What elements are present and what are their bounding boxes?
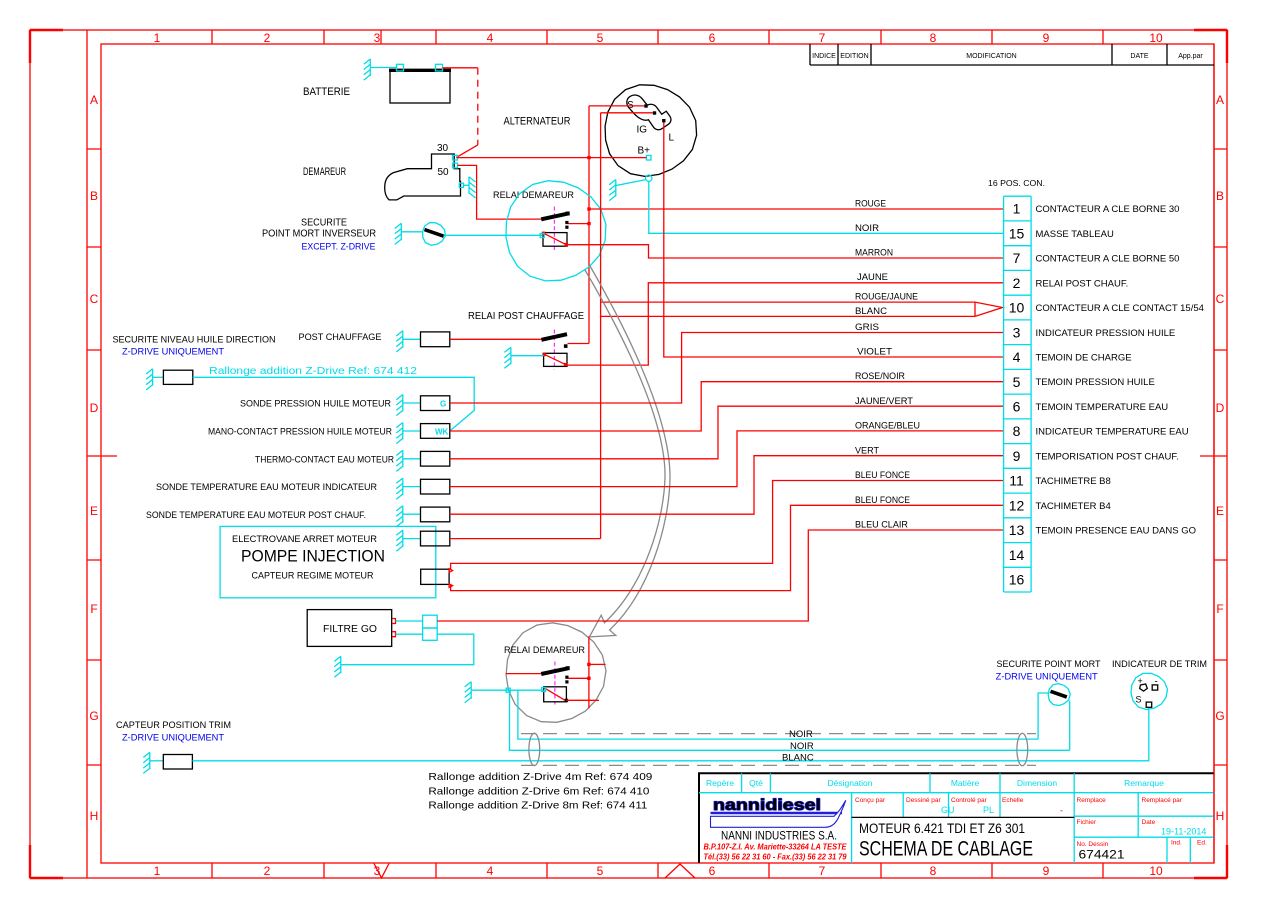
svg-text:SONDE TEMPERATURE EAU MOTEUR I: SONDE TEMPERATURE EAU MOTEUR INDICATEUR <box>156 482 377 492</box>
svg-text:JAUNE/VERT: JAUNE/VERT <box>855 396 914 406</box>
svg-text:Z-DRIVE UNIQUEMENT: Z-DRIVE UNIQUEMENT <box>122 733 225 743</box>
svg-text:IG: IG <box>637 125 648 136</box>
svg-text:3: 3 <box>374 31 381 45</box>
svg-text:BLANC: BLANC <box>782 752 814 763</box>
svg-text:B: B <box>1216 189 1224 203</box>
svg-text:ALTERNATEUR: ALTERNATEUR <box>504 116 571 128</box>
svg-text:POINT MORT INVERSEUR: POINT MORT INVERSEUR <box>262 229 376 240</box>
svg-text:MODIFICATION: MODIFICATION <box>966 53 1016 60</box>
svg-text:7: 7 <box>1013 250 1021 266</box>
svg-text:10: 10 <box>1009 300 1025 316</box>
svg-text:674421: 674421 <box>1079 848 1125 862</box>
svg-text:Conçu par: Conçu par <box>855 797 886 804</box>
svg-text:C: C <box>90 292 99 306</box>
svg-text:-: - <box>1060 806 1063 816</box>
svg-text:Fichier: Fichier <box>1077 819 1097 826</box>
svg-text:Remarque: Remarque <box>1124 778 1164 788</box>
svg-text:BLEU CLAIR: BLEU CLAIR <box>855 520 908 530</box>
svg-text:Rallonge addition Z-Drive 8m: Rallonge addition Z-Drive 8m Ref: 674 41… <box>428 800 647 812</box>
svg-text:Repère: Repère <box>706 778 734 788</box>
svg-text:DEMAREUR: DEMAREUR <box>303 166 346 178</box>
svg-text:TEMOIN DE CHARGE: TEMOIN DE CHARGE <box>1036 353 1132 364</box>
svg-text:G: G <box>89 709 98 723</box>
svg-text:Rallonge addition Z-Drive 6m: Rallonge addition Z-Drive 6m Ref: 674 41… <box>428 785 649 797</box>
svg-text:THERMO-CONTACT EAU MOTEUR: THERMO-CONTACT EAU MOTEUR <box>255 454 394 464</box>
svg-text:D: D <box>90 401 99 415</box>
svg-text:BLEU FONCE: BLEU FONCE <box>855 470 910 480</box>
svg-text:7: 7 <box>819 31 826 45</box>
svg-text:Dessiné par: Dessiné par <box>906 797 942 804</box>
svg-text:B: B <box>90 189 98 203</box>
svg-text:4: 4 <box>487 31 494 45</box>
svg-text:6: 6 <box>709 31 716 45</box>
svg-text:TEMOIN TEMPERATURE EAU: TEMOIN TEMPERATURE EAU <box>1036 402 1169 413</box>
svg-text:15: 15 <box>1009 225 1025 241</box>
svg-text:Remplacé par: Remplacé par <box>1142 797 1183 804</box>
svg-text:14: 14 <box>1009 547 1025 563</box>
svg-text:30: 30 <box>437 143 449 154</box>
svg-text:PL: PL <box>983 805 994 815</box>
svg-text:Rallonge addition Z-Drive 4m: Rallonge addition Z-Drive 4m Ref: 674 40… <box>428 771 652 783</box>
svg-text:19-11-2014: 19-11-2014 <box>1161 827 1206 837</box>
svg-text:SONDE PRESSION HUILE MOTEUR: SONDE PRESSION HUILE MOTEUR <box>240 399 391 409</box>
svg-text:4: 4 <box>487 864 494 878</box>
svg-text:EDITION: EDITION <box>840 53 868 60</box>
svg-text:10: 10 <box>1149 864 1163 878</box>
svg-text:EXCEPT. Z-DRIVE: EXCEPT. Z-DRIVE <box>302 242 376 252</box>
svg-text:NOIR: NOIR <box>789 729 813 740</box>
svg-text:Ed.: Ed. <box>1197 840 1207 847</box>
svg-text:FILTRE GO: FILTRE GO <box>323 624 377 635</box>
svg-text:INDICATEUR TEMPERATURE EAU: INDICATEUR TEMPERATURE EAU <box>1036 427 1189 438</box>
svg-text:RELAI POST CHAUFFAGE: RELAI POST CHAUFFAGE <box>468 311 584 322</box>
svg-text:INDICATEUR PRESSION HUILE: INDICATEUR PRESSION HUILE <box>1036 328 1176 339</box>
svg-text:CONTACTEUR A CLE CONTACT 15/54: CONTACTEUR A CLE CONTACT 15/54 <box>1036 303 1204 314</box>
svg-text:JAUNE: JAUNE <box>857 272 888 282</box>
svg-text:4: 4 <box>1013 349 1021 365</box>
svg-text:Remplace: Remplace <box>1077 797 1107 804</box>
svg-text:G: G <box>1215 709 1224 723</box>
svg-text:A: A <box>1216 93 1224 107</box>
svg-text:CAPTEUR POSITION TRIM: CAPTEUR POSITION TRIM <box>116 720 231 730</box>
svg-text:Ind.: Ind. <box>1171 840 1182 847</box>
svg-text:Z-DRIVE UNIQUEMENT: Z-DRIVE UNIQUEMENT <box>996 672 1099 682</box>
svg-text:App.par: App.par <box>1178 53 1203 60</box>
svg-text:ELECTROVANE ARRET MOTEUR: ELECTROVANE ARRET MOTEUR <box>232 534 377 545</box>
svg-text:9: 9 <box>1013 448 1021 464</box>
svg-text:DATE: DATE <box>1130 53 1148 60</box>
svg-text:10: 10 <box>1149 31 1163 45</box>
svg-text:TACHIMETER B4: TACHIMETER B4 <box>1036 501 1111 512</box>
svg-text:8: 8 <box>930 864 937 878</box>
svg-text:CAPTEUR REGIME MOTEUR: CAPTEUR REGIME MOTEUR <box>252 571 374 582</box>
svg-text:H: H <box>1216 809 1225 823</box>
svg-text:MASSE TABLEAU: MASSE TABLEAU <box>1036 229 1114 240</box>
svg-text:9: 9 <box>1043 31 1050 45</box>
svg-text:GU: GU <box>941 805 955 815</box>
svg-text:E: E <box>90 504 98 518</box>
svg-text:6: 6 <box>1013 399 1021 415</box>
svg-text:BATTERIE: BATTERIE <box>303 86 350 98</box>
svg-text:5: 5 <box>597 864 604 878</box>
svg-text:H: H <box>90 809 99 823</box>
svg-text:1: 1 <box>154 31 161 45</box>
svg-text:2: 2 <box>1013 275 1021 291</box>
svg-text:5: 5 <box>597 31 604 45</box>
svg-text:INDICATEUR DE TRIM: INDICATEUR DE TRIM <box>1112 659 1207 670</box>
svg-text:5: 5 <box>1013 374 1021 390</box>
svg-text:SECURITE NIVEAU HUILE DIRECTIO: SECURITE NIVEAU HUILE DIRECTION <box>113 335 276 345</box>
svg-text:L: L <box>669 133 675 144</box>
svg-text:Echelle: Echelle <box>1002 797 1024 804</box>
svg-text:NOIR: NOIR <box>790 741 814 752</box>
svg-text:TACHIMETRE B8: TACHIMETRE B8 <box>1036 476 1111 487</box>
svg-text:8: 8 <box>1013 423 1021 439</box>
svg-text:TEMOIN PRESENCE EAU DANS GO: TEMOIN PRESENCE EAU DANS GO <box>1036 526 1196 537</box>
svg-text:A: A <box>90 93 98 107</box>
svg-text:WK: WK <box>435 427 449 436</box>
svg-text:2: 2 <box>264 864 271 878</box>
svg-text:MANO-CONTACT PRESSION HUILE MO: MANO-CONTACT PRESSION HUILE MOTEUR <box>208 427 392 437</box>
svg-text:3: 3 <box>1013 324 1021 340</box>
svg-text:8: 8 <box>930 31 937 45</box>
svg-text:SCHEMA DE CABLAGE: SCHEMA DE CABLAGE <box>859 838 1033 861</box>
svg-text:Dimension: Dimension <box>1017 778 1057 788</box>
svg-text:NOIR: NOIR <box>855 223 880 233</box>
svg-text:RELAI POST CHAUF.: RELAI POST CHAUF. <box>1036 278 1129 289</box>
svg-text:F: F <box>1216 602 1223 616</box>
svg-text:POST CHAUFFAGE: POST CHAUFFAGE <box>299 332 382 343</box>
svg-text:13: 13 <box>1009 522 1025 538</box>
svg-text:1: 1 <box>1013 201 1021 217</box>
svg-text:SONDE TEMPERATURE EAU MOTEUR P: SONDE TEMPERATURE EAU MOTEUR POST CHAUF. <box>146 510 366 520</box>
svg-text:MARRON: MARRON <box>855 248 893 258</box>
svg-text:RELAI DEMAREUR: RELAI DEMAREUR <box>493 190 574 201</box>
svg-text:Qté: Qté <box>749 778 763 788</box>
svg-text:Date: Date <box>1142 819 1156 826</box>
svg-text:B.P.107-Z.I. Av. Mariette-3326: B.P.107-Z.I. Av. Mariette-33264 LA TESTE <box>704 843 848 852</box>
svg-text:VERT: VERT <box>855 446 880 456</box>
svg-text:S: S <box>1136 695 1142 705</box>
svg-text:C: C <box>1216 292 1225 306</box>
svg-text:ROSE/NOIR: ROSE/NOIR <box>855 371 905 381</box>
svg-text:3: 3 <box>374 864 381 878</box>
svg-text:POMPE INJECTION: POMPE INJECTION <box>241 547 385 566</box>
svg-text:nannidiesel: nannidiesel <box>713 797 821 814</box>
svg-text:MOTEUR 6.421 TDI ET Z6 301: MOTEUR 6.421 TDI ET Z6 301 <box>859 821 1025 836</box>
svg-text:9: 9 <box>1043 864 1050 878</box>
svg-text:GRIS: GRIS <box>855 322 879 332</box>
svg-text:Matière: Matière <box>951 778 980 788</box>
svg-text:SECURITE POINT MORT: SECURITE POINT MORT <box>997 659 1101 670</box>
svg-text:ROUGE: ROUGE <box>855 199 886 209</box>
svg-text:BLANC: BLANC <box>855 306 888 316</box>
svg-text:CONTACTEUR A CLE BORNE 50: CONTACTEUR A CLE BORNE 50 <box>1036 254 1180 265</box>
svg-text:12: 12 <box>1009 497 1025 513</box>
svg-text:6: 6 <box>709 864 716 878</box>
svg-text:SECURITE: SECURITE <box>301 218 347 229</box>
svg-text:NANNI INDUSTRIES S.A.: NANNI INDUSTRIES S.A. <box>721 829 837 843</box>
svg-text:BLEU FONCE: BLEU FONCE <box>855 495 910 505</box>
svg-text:TEMPORISATION POST CHAUF.: TEMPORISATION POST CHAUF. <box>1036 452 1179 463</box>
svg-text:Rallonge addition Z-Drive Re: Rallonge addition Z-Drive Ref: 674 412 <box>209 366 418 377</box>
svg-text:ROUGE/JAUNE: ROUGE/JAUNE <box>855 292 918 302</box>
svg-text:2: 2 <box>264 31 271 45</box>
svg-text:11: 11 <box>1009 473 1024 489</box>
svg-text:CONTACTEUR A CLE BORNE 30: CONTACTEUR A CLE BORNE 30 <box>1036 204 1180 215</box>
svg-text:F: F <box>90 602 97 616</box>
svg-text:Tél.(33) 56 22 31 60 - Fax.(33: Tél.(33) 56 22 31 60 - Fax.(33) 56 22 31… <box>704 853 848 862</box>
svg-text:G: G <box>440 399 446 408</box>
svg-text:D: D <box>1216 401 1225 415</box>
svg-text:ORANGE/BLEU: ORANGE/BLEU <box>855 421 920 431</box>
svg-text:Controlé par: Controlé par <box>951 797 988 804</box>
svg-text:VIOLET: VIOLET <box>857 347 893 357</box>
svg-text:16: 16 <box>1009 572 1025 588</box>
svg-text:50: 50 <box>438 167 450 178</box>
svg-text:1: 1 <box>154 864 161 878</box>
svg-text:16 POS. CON.: 16 POS. CON. <box>988 178 1045 188</box>
svg-text:Z-DRIVE UNIQUEMENT: Z-DRIVE UNIQUEMENT <box>122 347 225 357</box>
svg-text:7: 7 <box>819 864 826 878</box>
svg-text:TEMOIN PRESSION HUILE: TEMOIN PRESSION HUILE <box>1036 377 1155 388</box>
svg-text:RELAI DEMAREUR: RELAI DEMAREUR <box>504 645 585 656</box>
svg-text:E: E <box>1216 504 1224 518</box>
svg-text:INDICE: INDICE <box>812 53 836 60</box>
svg-text:Désignation: Désignation <box>828 778 873 788</box>
